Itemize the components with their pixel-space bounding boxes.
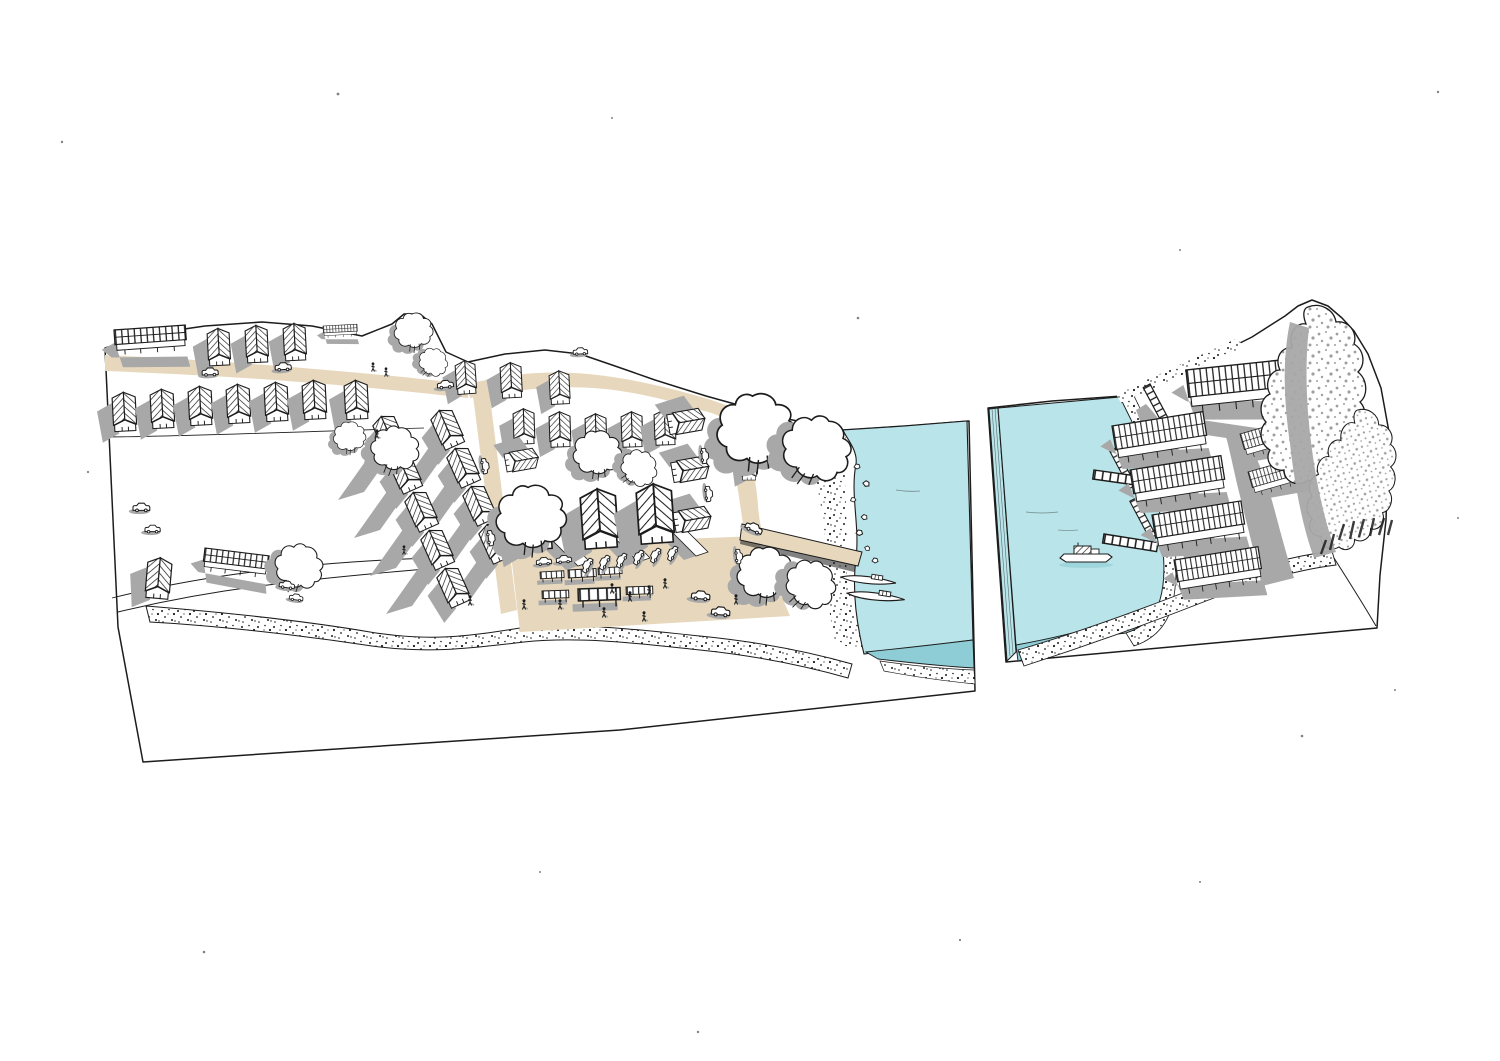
paper-speck bbox=[539, 871, 541, 873]
paper-speck bbox=[611, 117, 613, 119]
paper-speck bbox=[1457, 517, 1459, 519]
paper-speck bbox=[1394, 689, 1396, 691]
river-water bbox=[843, 421, 973, 654]
paper-speck bbox=[61, 141, 63, 143]
paper-speck bbox=[1437, 91, 1439, 93]
paper-speck bbox=[697, 1031, 699, 1033]
market-stall bbox=[595, 567, 623, 581]
paper-speck bbox=[337, 93, 340, 96]
market-stall bbox=[537, 571, 565, 585]
village-block bbox=[96, 313, 975, 762]
paper-speck bbox=[857, 317, 860, 320]
illustration-canvas bbox=[0, 0, 1500, 1061]
paper-speck bbox=[959, 939, 961, 941]
paper-speck bbox=[1179, 249, 1181, 251]
market-stall bbox=[538, 590, 569, 605]
paper-speck bbox=[87, 471, 89, 473]
riverside-settlement-illustration bbox=[0, 0, 1500, 1061]
paper-speck bbox=[1199, 881, 1201, 883]
river-block bbox=[988, 300, 1404, 666]
paper-speck bbox=[1301, 735, 1304, 738]
market-stall bbox=[564, 569, 597, 586]
paper-speck bbox=[203, 951, 206, 954]
